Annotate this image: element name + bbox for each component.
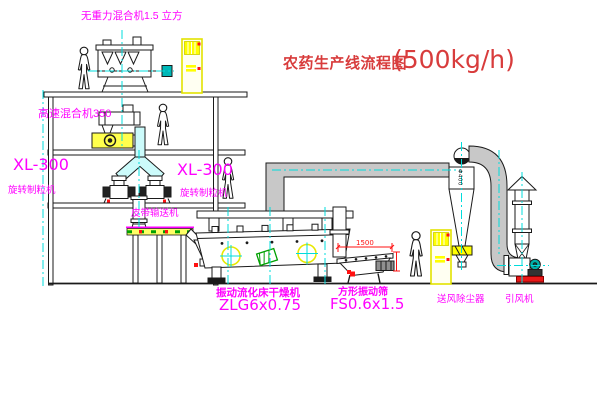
worker-1: [78, 47, 89, 89]
dust-collector-label: 送风除尘器: [437, 295, 485, 305]
sieve-model-label: FS0.6x1.5: [330, 297, 404, 312]
induced-fan-label: 引风机: [505, 295, 534, 305]
control-cabinet-ground: [431, 230, 451, 284]
page-title: 农药生产线流程图: [283, 52, 407, 73]
high-speed-mixer-label: 高速混合机350: [38, 109, 111, 120]
cyclone-diameter-label: Φ400: [456, 169, 462, 186]
page-title-capacity: (500kg/h): [393, 45, 515, 74]
granulator-mid-name: 旋转制粒机: [180, 189, 228, 199]
sieve-feed-chute: [330, 207, 349, 257]
pesticide-line-flow-diagram: 无重力混合机1.5 立方 高速混合机350 XL-300 旋转制粒机 XL-30…: [0, 0, 600, 403]
fan-suction-pipe: [469, 146, 521, 275]
square-vibrating-sieve: [337, 254, 394, 284]
control-cabinet-top: [182, 39, 202, 93]
dryer-model-label: ZLG6x0.75: [219, 298, 301, 313]
fluid-bed-dryer: [196, 211, 353, 283]
induced-draft-fan: [509, 258, 544, 282]
sieve-dimension-label: 1500: [356, 240, 374, 247]
granulator-mid-model: XL-300: [177, 162, 233, 178]
worker-2: [158, 104, 169, 145]
gravity-free-mixer: [88, 37, 172, 92]
belt-conveyor-label: 皮带输送机: [131, 209, 179, 219]
granulator-left-model: XL-300: [13, 157, 69, 173]
worker-4: [410, 232, 422, 276]
granulator-left-name: 旋转制粒机: [8, 186, 56, 196]
gravity-mixer-label: 无重力混合机1.5 立方: [81, 11, 183, 22]
belt-conveyor: [126, 227, 202, 283]
